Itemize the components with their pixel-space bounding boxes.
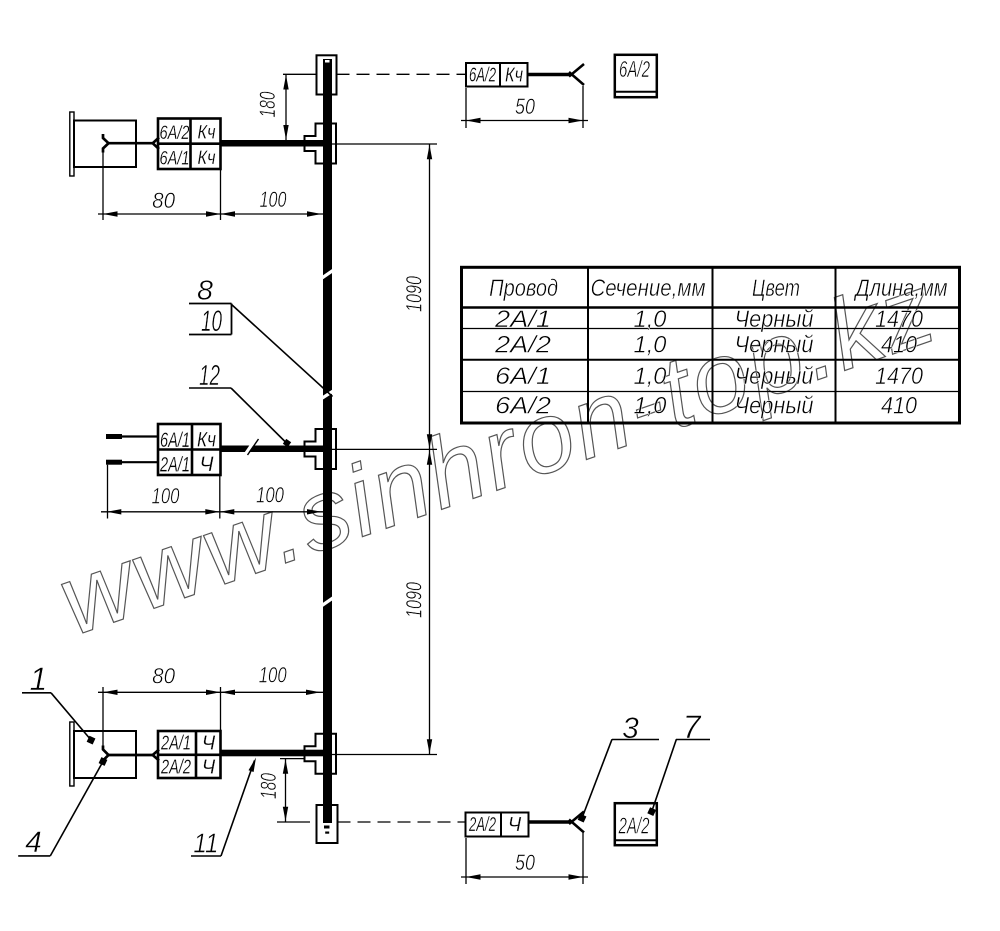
svg-text:1470: 1470 <box>875 306 924 333</box>
svg-text:6А/1: 6А/1 <box>495 363 551 390</box>
svg-text:1,0: 1,0 <box>634 393 668 420</box>
svg-text:Провод: Провод <box>489 275 558 302</box>
svg-text:180: 180 <box>255 91 280 118</box>
svg-text:1,0: 1,0 <box>634 363 668 390</box>
svg-text:6А/2: 6А/2 <box>469 65 496 87</box>
svg-text:Черный: Черный <box>735 393 814 420</box>
svg-text:100: 100 <box>256 483 285 508</box>
svg-text:100: 100 <box>259 663 288 688</box>
svg-text:6А/2: 6А/2 <box>160 122 190 144</box>
svg-text:Ч: Ч <box>199 453 214 476</box>
svg-text:Длина,мм: Длина,мм <box>853 275 948 302</box>
svg-text:2А/2: 2А/2 <box>618 813 650 839</box>
svg-text:Ч: Ч <box>202 756 216 778</box>
svg-text:Ч: Ч <box>202 732 216 754</box>
svg-text:1470: 1470 <box>875 363 924 390</box>
svg-text:Цвет: Цвет <box>752 275 800 302</box>
svg-text:Кч: Кч <box>505 65 523 87</box>
svg-text:Черный: Черный <box>735 363 814 390</box>
svg-text:410: 410 <box>881 393 918 420</box>
svg-text:2А/1: 2А/1 <box>159 454 190 477</box>
svg-text:10: 10 <box>201 305 222 338</box>
svg-text:2А/2: 2А/2 <box>468 814 496 836</box>
svg-text:1,0: 1,0 <box>634 306 668 333</box>
svg-text:6А/2: 6А/2 <box>619 56 650 82</box>
svg-text:80: 80 <box>152 188 176 213</box>
svg-text:2А/1: 2А/1 <box>494 306 551 333</box>
svg-text:1,0: 1,0 <box>634 332 668 359</box>
svg-text:2А/1: 2А/1 <box>160 733 191 755</box>
svg-text:50: 50 <box>515 850 536 875</box>
svg-text:Черный: Черный <box>735 306 814 333</box>
svg-text:Ч: Ч <box>508 814 522 836</box>
svg-text:80: 80 <box>152 664 176 689</box>
svg-text:180: 180 <box>256 772 281 799</box>
svg-text:1090: 1090 <box>402 275 427 312</box>
svg-text:1090: 1090 <box>402 581 427 618</box>
svg-text:100: 100 <box>152 484 181 509</box>
svg-text:2А/2: 2А/2 <box>160 757 191 779</box>
svg-text:Кч: Кч <box>198 122 216 144</box>
svg-text:100: 100 <box>260 187 288 212</box>
svg-text:Кч: Кч <box>198 147 216 169</box>
svg-text:Черный: Черный <box>735 332 814 359</box>
svg-text:410: 410 <box>881 332 918 359</box>
svg-text:50: 50 <box>515 94 536 119</box>
svg-text:6А/1: 6А/1 <box>160 147 190 169</box>
svg-text:6А/1: 6А/1 <box>160 429 190 452</box>
svg-text:4: 4 <box>25 826 42 859</box>
svg-text:1: 1 <box>30 661 48 697</box>
svg-text:2А/2: 2А/2 <box>494 332 551 359</box>
svg-text:Кч: Кч <box>197 429 216 452</box>
svg-text:Сечение,мм: Сечение,мм <box>591 275 706 302</box>
svg-text:11: 11 <box>193 828 218 859</box>
svg-text:6А/2: 6А/2 <box>495 393 551 420</box>
svg-text:8: 8 <box>197 275 213 306</box>
